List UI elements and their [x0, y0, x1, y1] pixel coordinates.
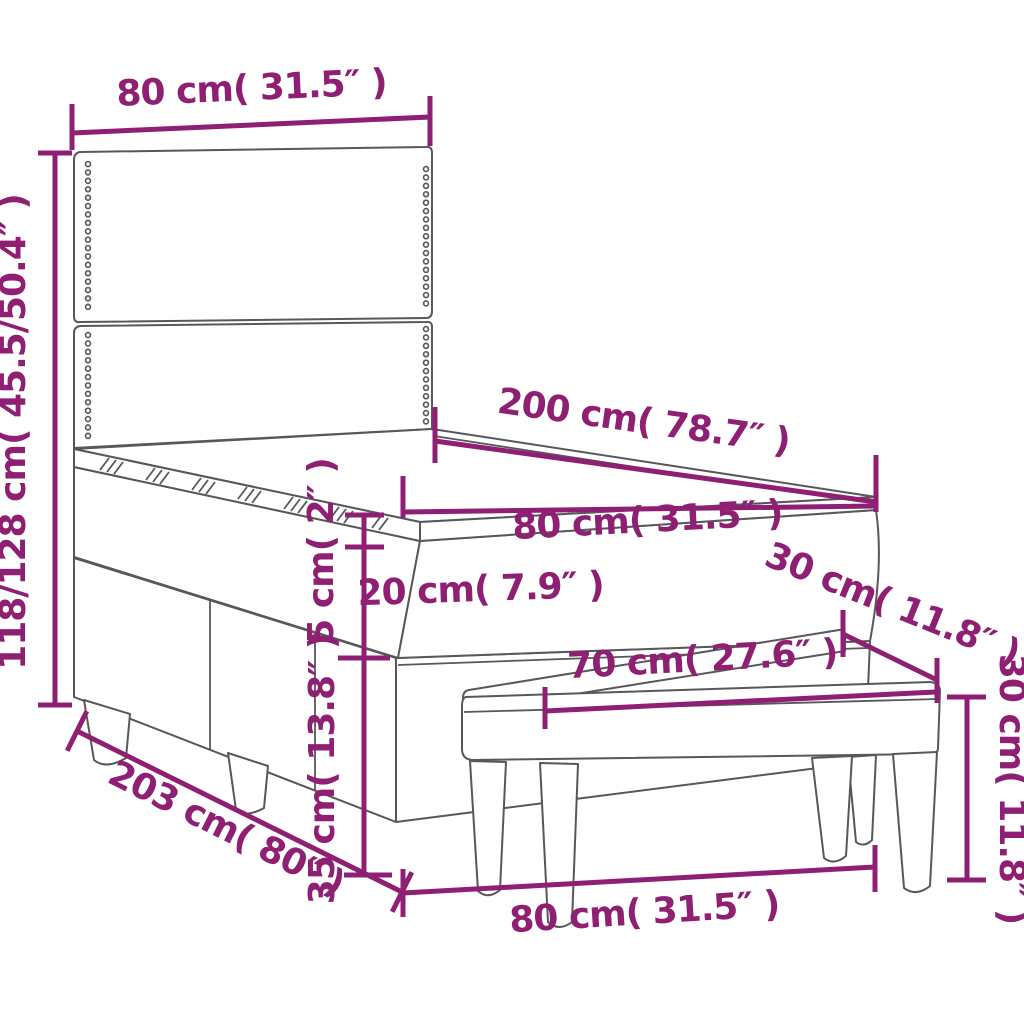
bench-leg-far-right [893, 752, 937, 892]
headboard [74, 147, 432, 448]
dim-bench-height-label: 30 cm( 11.8″ ) [991, 654, 1024, 924]
bench-leg-front-left [470, 761, 506, 895]
dim-bench-height: 30 cm( 11.8″ ) [947, 654, 1024, 924]
dim-headboard-height: 118/128 cm( 45.5/50.4″ ) [0, 153, 72, 705]
dim-mattress-height-label: 20 cm( 7.9″ ) [357, 565, 605, 615]
dim-headboard-height-label: 118/128 cm( 45.5/50.4″ ) [0, 194, 34, 670]
dim-headboard-width-label: 80 cm( 31.5″ ) [116, 62, 388, 115]
headboard-upper-panel [74, 147, 432, 322]
dim-headboard-width: 80 cm( 31.5″ ) [72, 62, 430, 150]
dim-topper-height-label: 5 cm( 2″ ) [301, 458, 342, 644]
headboard-lower-panel [74, 322, 432, 448]
dim-bench-length: 80 cm( 31.5″ ) [403, 845, 875, 941]
bed-dimension-diagram: 80 cm( 31.5″ ) 118/128 cm( 45.5/50.4″ ) … [0, 0, 1024, 1024]
diagram-canvas: 80 cm( 31.5″ ) 118/128 cm( 45.5/50.4″ ) … [0, 0, 1024, 1024]
bench-leg-front-right [812, 756, 852, 862]
